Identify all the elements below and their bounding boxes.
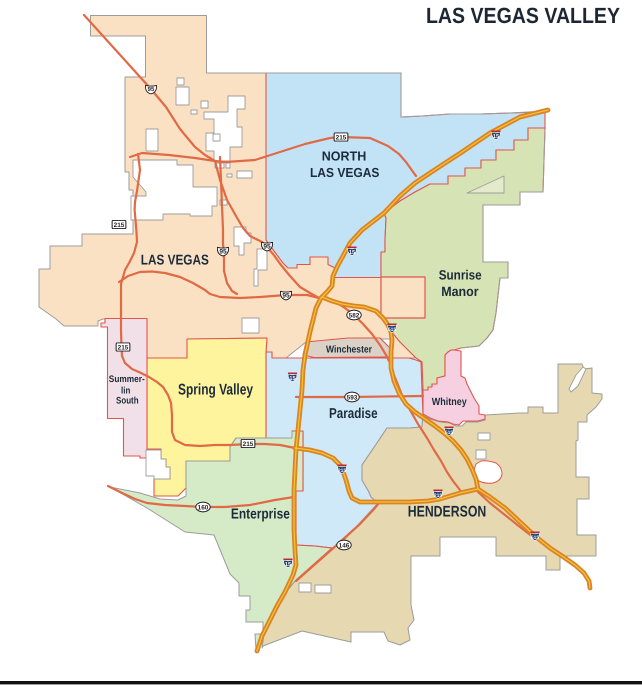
svg-text:582: 582 — [349, 312, 360, 319]
svg-text:215: 215 — [336, 134, 347, 141]
svg-text:Sunrise: Sunrise — [439, 267, 482, 282]
svg-text:15: 15 — [493, 134, 499, 140]
svg-text:215: 215 — [118, 344, 129, 351]
svg-text:South: South — [116, 395, 139, 406]
svg-text:NORTH: NORTH — [322, 149, 367, 164]
svg-text:95: 95 — [148, 86, 155, 93]
svg-text:LAS VEGAS: LAS VEGAS — [141, 253, 209, 269]
svg-text:160: 160 — [198, 504, 209, 511]
svg-text:515: 515 — [531, 535, 540, 541]
svg-text:HENDERSON: HENDERSON — [408, 504, 487, 521]
svg-text:Spring Valley: Spring Valley — [178, 381, 253, 398]
svg-text:LAS VEGAS VALLEY: LAS VEGAS VALLEY — [426, 3, 620, 28]
svg-text:215: 215 — [243, 441, 254, 448]
svg-text:95: 95 — [282, 292, 290, 299]
svg-text:95: 95 — [219, 248, 227, 255]
svg-text:Whitney: Whitney — [432, 397, 467, 408]
svg-text:Paradise: Paradise — [329, 406, 378, 422]
svg-text:LAS VEGAS: LAS VEGAS — [310, 165, 380, 180]
svg-text:15: 15 — [285, 562, 291, 568]
svg-text:15: 15 — [349, 250, 355, 256]
svg-text:Enterprise: Enterprise — [231, 507, 290, 523]
svg-text:215: 215 — [114, 222, 125, 229]
svg-text:15: 15 — [289, 376, 295, 382]
svg-text:Summer-: Summer- — [109, 374, 145, 385]
svg-text:593: 593 — [347, 394, 358, 401]
svg-text:515: 515 — [388, 327, 397, 333]
svg-text:95: 95 — [263, 243, 271, 250]
svg-text:146: 146 — [339, 542, 350, 549]
svg-text:Winchester: Winchester — [326, 345, 372, 356]
svg-text:515: 515 — [445, 430, 454, 436]
svg-text:215: 215 — [338, 468, 347, 474]
svg-text:215: 215 — [434, 493, 443, 499]
svg-text:Manor: Manor — [441, 284, 479, 299]
